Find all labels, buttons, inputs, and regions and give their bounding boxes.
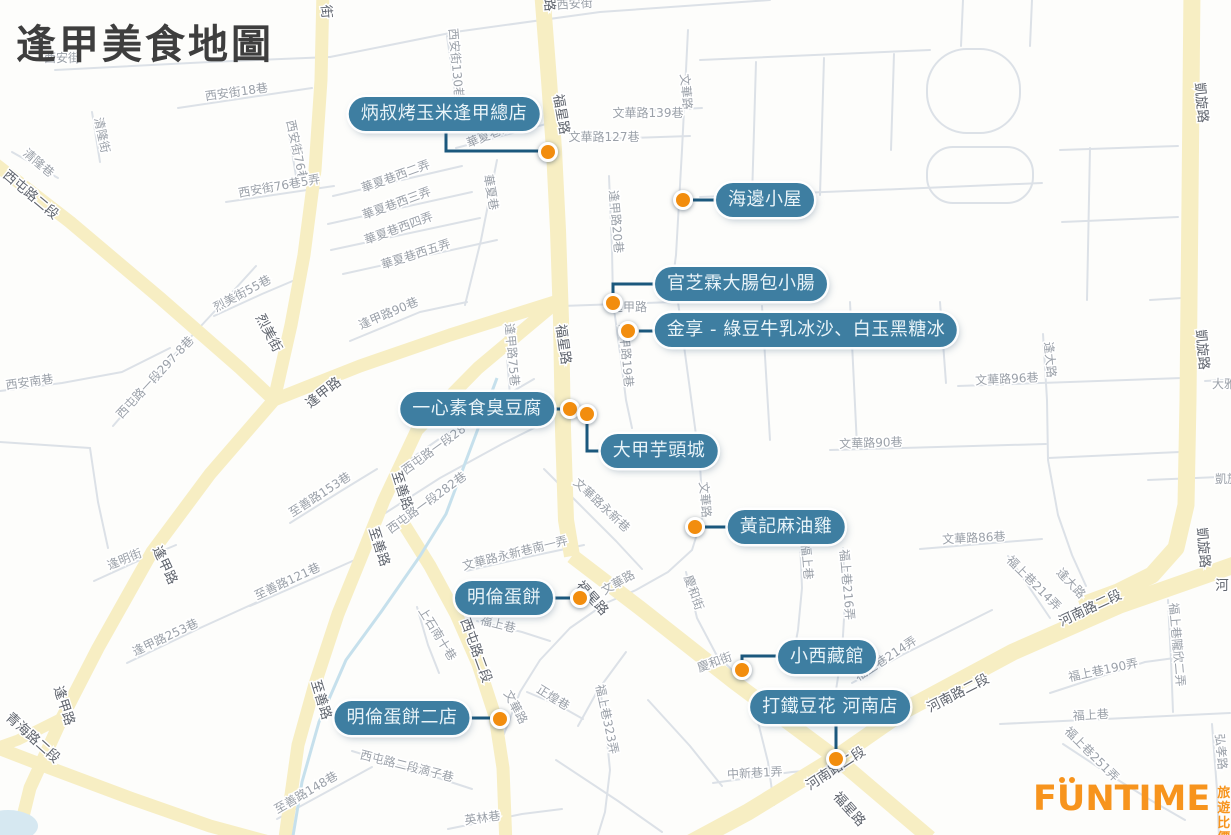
- logo-brand-text: FUNTIME: [1033, 779, 1210, 819]
- place-label[interactable]: 海邊小屋: [716, 183, 814, 217]
- place-marker[interactable]: [826, 749, 846, 769]
- fengjia-food-map: 西安街西安街西安街130巷西安街18巷清隆街清隆巷西安街76巷西安街76巷5弄華…: [0, 0, 1231, 835]
- page-title: 逢甲美食地圖: [16, 12, 274, 70]
- place-marker[interactable]: [732, 660, 752, 680]
- place-marker[interactable]: [490, 709, 510, 729]
- logo-umlaut-dots-icon: [1059, 777, 1065, 783]
- place-marker[interactable]: [538, 142, 558, 162]
- place-marker[interactable]: [603, 293, 623, 313]
- place-marker[interactable]: [577, 404, 597, 424]
- logo-tagline-line2: 比價: [1217, 817, 1231, 835]
- place-marker[interactable]: [570, 588, 590, 608]
- place-label[interactable]: 一心素食臭豆腐: [400, 392, 554, 426]
- place-marker[interactable]: [618, 321, 638, 341]
- logo-brand: FUNTIME: [1033, 782, 1210, 817]
- place-label[interactable]: 官芝霖大腸包小腸: [655, 267, 827, 301]
- logo-tagline: 旅遊 比價: [1217, 782, 1231, 835]
- place-label[interactable]: 炳叔烤玉米逢甲總店: [349, 97, 540, 131]
- place-label[interactable]: 黃記麻油雞: [728, 510, 845, 544]
- markers-layer: 炳叔烤玉米逢甲總店海邊小屋官芝霖大腸包小腸金享 - 綠豆牛乳冰沙、白玉黑糖冰一心…: [0, 0, 1231, 835]
- logo-tagline-line1: 旅遊: [1217, 787, 1231, 817]
- place-label[interactable]: 明倫蛋餅二店: [335, 701, 470, 735]
- place-label[interactable]: 打鐵豆花 河南店: [750, 690, 910, 724]
- place-marker[interactable]: [673, 190, 693, 210]
- place-label[interactable]: 金享 - 綠豆牛乳冰沙、白玉黑糖冰: [655, 313, 957, 347]
- place-label[interactable]: 大甲芋頭城: [601, 434, 718, 468]
- place-label[interactable]: 小西藏館: [778, 640, 876, 674]
- funtime-logo: FUNTIME 旅遊 比價: [1033, 782, 1231, 835]
- place-label[interactable]: 明倫蛋餅: [455, 581, 553, 615]
- place-marker[interactable]: [685, 517, 705, 537]
